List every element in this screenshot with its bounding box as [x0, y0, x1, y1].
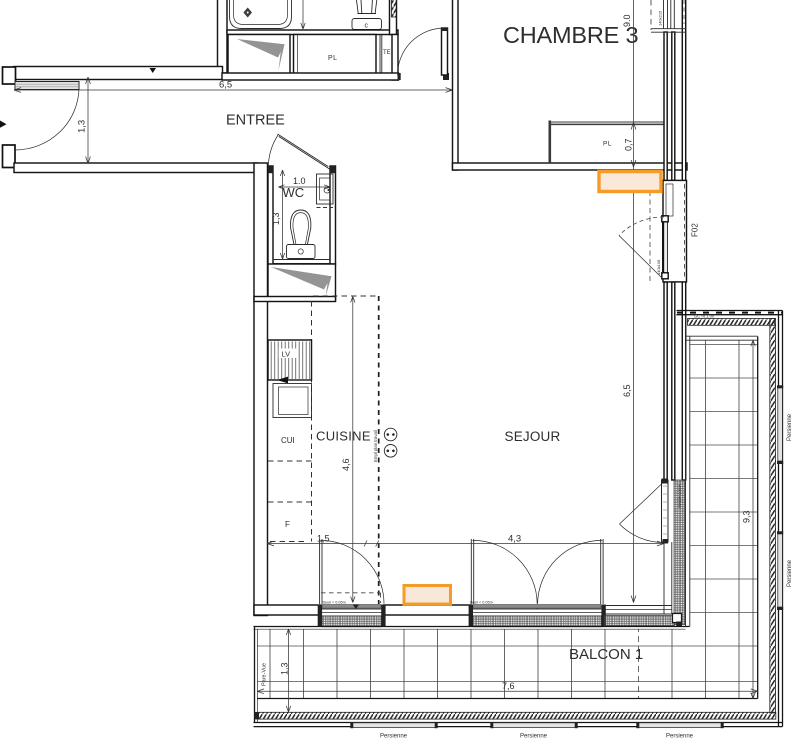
svg-text:SEJOUR: SEJOUR — [505, 429, 561, 444]
svg-text:7,6: 7,6 — [502, 681, 515, 691]
svg-text:PL: PL — [328, 55, 338, 62]
svg-text:PL: PL — [603, 141, 612, 148]
svg-text:1,5: 1,5 — [317, 534, 330, 544]
svg-text:9.0: 9.0 — [622, 14, 632, 27]
svg-text:F: F — [285, 520, 290, 529]
svg-text:140x108: 140x108 — [656, 259, 661, 275]
svg-text:Persienne: Persienne — [520, 734, 548, 740]
svg-text:F02: F02 — [691, 223, 700, 237]
svg-text:1,3: 1,3 — [77, 120, 88, 133]
svg-text:GC ht 1.00: GC ht 1.00 — [694, 314, 715, 319]
svg-text:c: c — [365, 23, 369, 30]
svg-text:Pare-Vue: Pare-Vue — [262, 663, 268, 686]
svg-text:Seuil < 0.05m: Seuil < 0.05m — [323, 601, 346, 605]
svg-text:6,5: 6,5 — [219, 80, 232, 91]
svg-text:Persienne: Persienne — [380, 734, 408, 740]
svg-text:Seuil < 0.05m: Seuil < 0.05m — [470, 601, 493, 605]
svg-text:Empl plan travail: Empl plan travail — [373, 430, 378, 462]
svg-text:Persienne: Persienne — [787, 559, 793, 587]
svg-text:ENTREE: ENTREE — [226, 113, 285, 129]
svg-text:TE: TE — [383, 50, 391, 56]
svg-text:1,3: 1,3 — [280, 662, 290, 675]
svg-text:Persienne: Persienne — [666, 734, 694, 740]
svg-text:0,7: 0,7 — [624, 138, 634, 151]
svg-text:4,6: 4,6 — [341, 458, 351, 471]
svg-text:CUISINE: CUISINE — [316, 429, 371, 444]
svg-text:6,5: 6,5 — [622, 384, 632, 397]
svg-text:9,3: 9,3 — [742, 510, 752, 523]
svg-text:WC: WC — [283, 185, 305, 200]
svg-text:Garde corps: Garde corps — [677, 484, 682, 508]
svg-text:Persienne: Persienne — [787, 413, 793, 441]
svg-text:4,3: 4,3 — [508, 534, 521, 545]
svg-text:LV: LV — [282, 350, 291, 359]
svg-text:CHAMBRE 3: CHAMBRE 3 — [503, 22, 638, 48]
svg-text:CUI: CUI — [281, 436, 295, 445]
svg-text:140x215: 140x215 — [658, 10, 663, 26]
svg-text:BALCON 1: BALCON 1 — [569, 646, 643, 663]
svg-text:1,3: 1,3 — [271, 212, 281, 225]
